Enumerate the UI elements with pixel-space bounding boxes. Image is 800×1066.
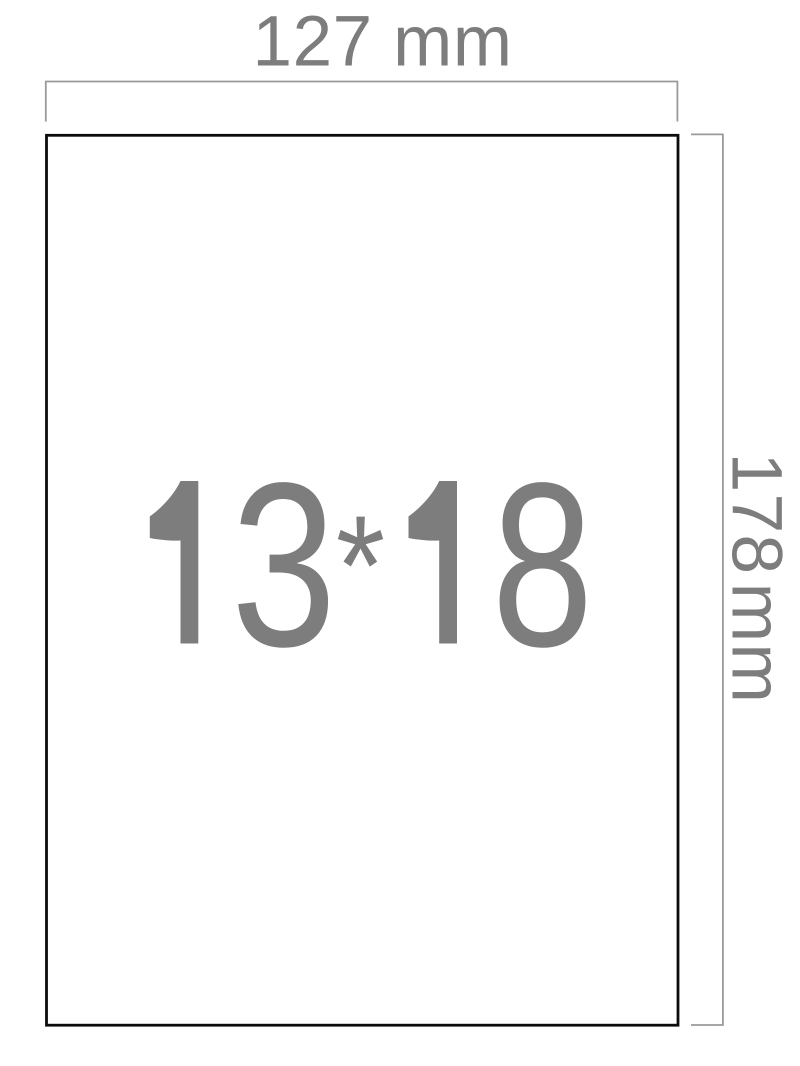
svg-text:3: 3 [231, 434, 336, 696]
svg-text:*: * [336, 486, 385, 646]
svg-text:127 mm: 127 mm [253, 3, 513, 82]
svg-text:178: 178 [717, 453, 797, 576]
svg-text:mm: mm [717, 583, 797, 705]
svg-text:8: 8 [492, 435, 594, 696]
